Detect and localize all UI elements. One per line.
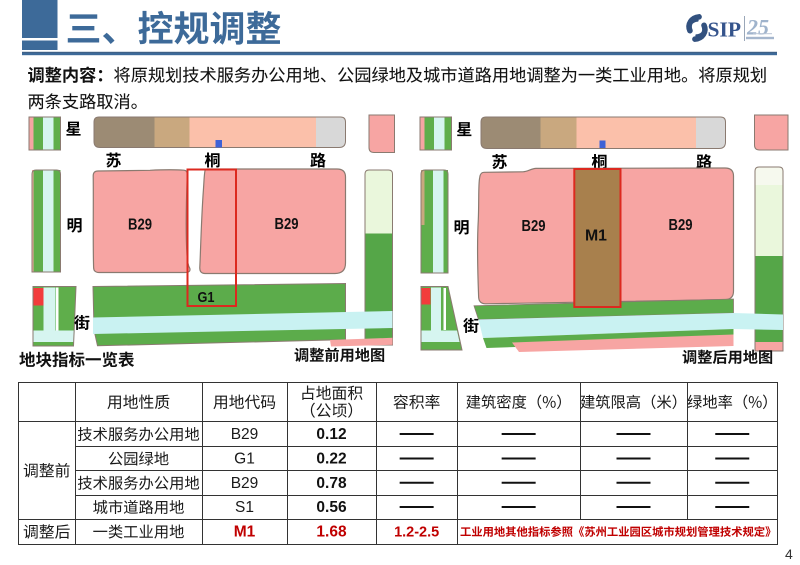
svg-text:B29: B29 (231, 475, 259, 492)
svg-text:S1: S1 (235, 499, 254, 516)
svg-text:M1: M1 (234, 524, 256, 541)
svg-text:0.22: 0.22 (316, 451, 346, 468)
svg-text:B29: B29 (128, 217, 152, 234)
svg-text:B29: B29 (231, 426, 259, 443)
svg-text:G1: G1 (234, 451, 255, 468)
svg-text:B29: B29 (275, 216, 299, 233)
svg-text:1.68: 1.68 (316, 524, 347, 541)
svg-text:1.2-2.5: 1.2-2.5 (394, 525, 439, 541)
svg-text:G1: G1 (198, 290, 215, 306)
svg-text:25: 25 (746, 15, 769, 40)
svg-text:0.78: 0.78 (316, 475, 347, 492)
svg-text:B29: B29 (669, 217, 693, 234)
svg-text:0.56: 0.56 (316, 499, 347, 516)
svg-text:B29: B29 (522, 218, 546, 235)
svg-text:0.12: 0.12 (316, 426, 346, 443)
svg-text:M1: M1 (585, 228, 607, 245)
svg-text:SIP: SIP (708, 18, 741, 42)
svg-text:4: 4 (785, 546, 793, 562)
